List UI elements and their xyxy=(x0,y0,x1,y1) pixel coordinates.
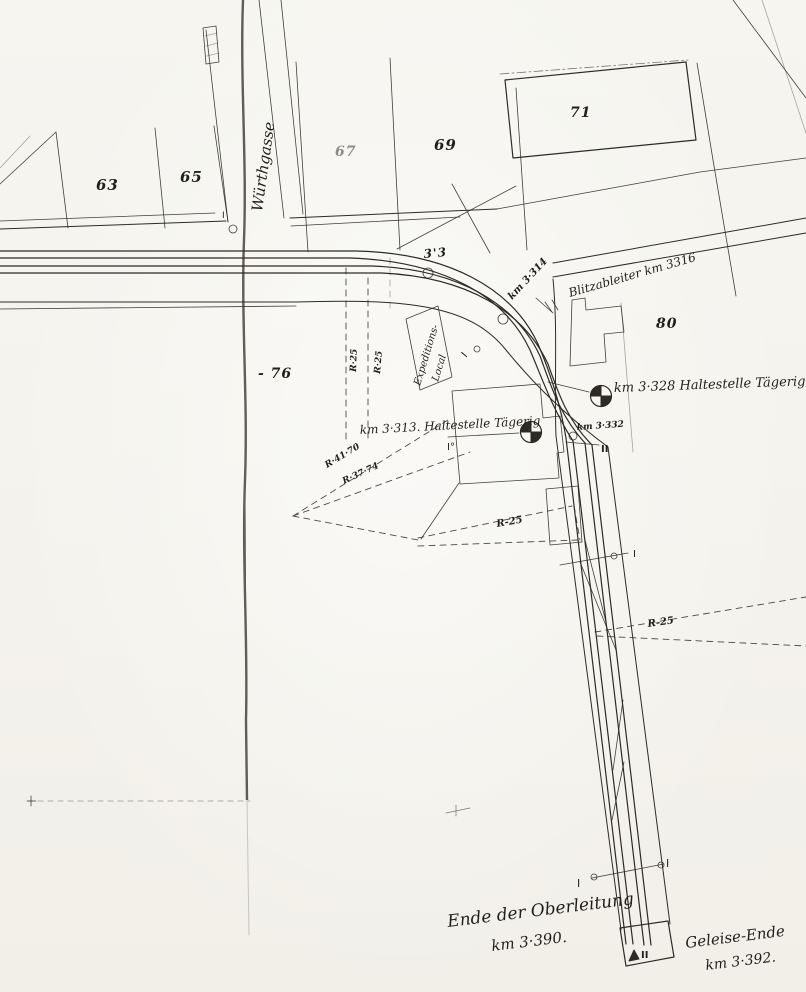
marker-i-left: I xyxy=(577,877,580,890)
r3774-label: R·37·74 xyxy=(340,461,380,487)
r25-vertical-1: R·25 xyxy=(349,349,360,373)
gauge-label: 3'3 xyxy=(423,245,448,261)
geleise-ende-km: km 3·392. xyxy=(705,949,777,974)
parcel-63-label: 63 xyxy=(96,176,119,194)
crossover-3 xyxy=(612,762,624,820)
survey-mark xyxy=(446,805,470,816)
mast-symbol-haltestelle-2 xyxy=(591,386,612,407)
buildings xyxy=(406,62,696,545)
leader-line xyxy=(448,433,519,437)
leader-line xyxy=(566,442,599,445)
marker-ii-end: II xyxy=(641,950,648,961)
parcel-76-label: - 76 xyxy=(258,366,292,382)
ende-oberleitung-km: km 3·390. xyxy=(490,928,567,955)
road-south-edge-into-siding xyxy=(0,301,670,924)
r25-label-a: R-25 xyxy=(495,515,524,531)
crossover-4 xyxy=(613,700,623,770)
building-near-80 xyxy=(570,298,624,366)
road-lines xyxy=(0,209,806,930)
pole-circle xyxy=(474,346,480,352)
pole-circle xyxy=(498,314,508,324)
parcel-69-label: 69 xyxy=(434,136,457,154)
pole-circle xyxy=(229,225,237,233)
r25-vertical-2: R·25 xyxy=(373,350,385,375)
marker-i-curve: I xyxy=(460,351,470,360)
crease-cross-mark xyxy=(27,796,36,806)
parcel-67-label: 67 xyxy=(335,144,356,160)
parcel-71-label: 71 xyxy=(570,105,591,121)
km-3332-label: km 3·332 xyxy=(577,420,625,433)
building-71 xyxy=(505,62,696,158)
track-plan-scan: Würthgasse 63 65 67 69 71 - 76 80 3'3 km… xyxy=(0,0,806,992)
section-line-mid xyxy=(560,553,628,565)
marker-i-section: I° xyxy=(447,442,455,453)
fold-crease xyxy=(27,0,470,935)
plan-drawing: Würthgasse 63 65 67 69 71 - 76 80 3'3 km… xyxy=(0,0,806,992)
buffer-stop-triangle xyxy=(629,950,639,961)
parcel-65-label: 65 xyxy=(180,168,203,186)
marker-i-top: I xyxy=(222,211,225,221)
geleise-ende-label: Geleise-Ende xyxy=(684,922,786,952)
ende-oberleitung-label: Ende der Oberleitung xyxy=(445,889,635,932)
track-rails xyxy=(0,251,651,945)
poles-and-markers xyxy=(229,225,664,880)
street-name-label: Würthgasse xyxy=(248,121,278,213)
r4170-label: R·41·70 xyxy=(323,442,363,471)
haltestelle-3328-label: km 3·328 Haltestelle Tägerig xyxy=(614,374,806,396)
marker-ii-a: II xyxy=(601,444,608,455)
r25-label-b: R-25 xyxy=(646,615,675,630)
marker-i-mid: I xyxy=(633,549,636,560)
section-line-low xyxy=(592,864,664,878)
km-3314-label: km 3·314 xyxy=(506,256,550,302)
plan-labels: Würthgasse 63 65 67 69 71 - 76 80 3'3 km… xyxy=(96,105,806,974)
parcel-80-label: 80 xyxy=(656,316,677,332)
marker-i-right: I xyxy=(666,857,669,870)
construction-lines xyxy=(293,258,806,646)
